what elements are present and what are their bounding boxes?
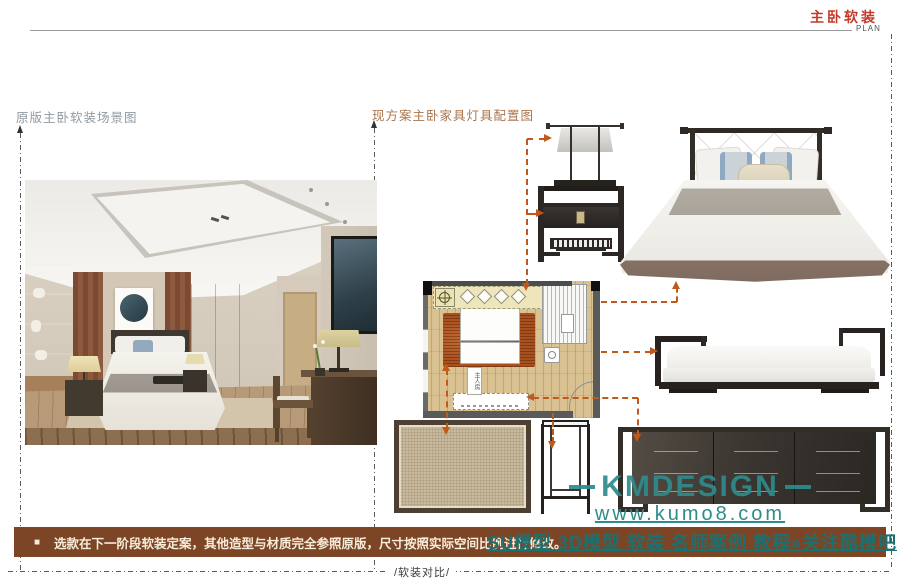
shelf-object	[33, 288, 45, 298]
lamp-symbol-icon	[439, 292, 450, 303]
left-section-label: 原版主卧软装场景图	[16, 107, 138, 126]
note-bullet: ■	[34, 537, 40, 548]
daybed-arm-bar	[839, 328, 885, 333]
plan-window	[423, 369, 428, 393]
guide-arrow-up-icon	[371, 120, 377, 128]
drawer-handle	[734, 451, 778, 452]
orchid-flower	[321, 340, 325, 344]
watermark-url: www.kumo8.com	[578, 503, 802, 526]
daybed-skid	[669, 389, 717, 393]
right-artwork	[331, 236, 377, 334]
drawer-handle	[816, 451, 860, 452]
daybed-skid	[821, 389, 869, 393]
rug-image	[394, 420, 531, 513]
stand-top	[542, 420, 589, 427]
plan-tag	[561, 314, 574, 333]
plan-bed-foot	[460, 342, 520, 364]
stand-foot	[541, 508, 544, 514]
daybed-arm-post	[880, 328, 885, 376]
shelf-object	[35, 350, 47, 360]
guide-line-left	[20, 133, 21, 570]
spotlight	[309, 188, 313, 192]
lamp-shade	[557, 128, 613, 152]
design-board: 主卧软装 PLAN /软装对比/ 原版主卧软装场景图 现方案主卧家具灯具配置图	[0, 0, 900, 586]
spotlight	[325, 202, 329, 206]
nightstand-stretcher	[538, 252, 560, 256]
wall-art-circle	[120, 294, 148, 322]
chair-leg	[275, 428, 279, 442]
chair-seat	[273, 400, 313, 408]
connector-line	[601, 301, 677, 303]
orchid-flower	[313, 344, 317, 348]
lamp-leg	[598, 127, 600, 184]
bed-tray	[153, 376, 187, 384]
arrow-right-icon	[650, 347, 658, 355]
arrow-down-icon	[442, 427, 450, 435]
plan-pillow-symbols	[459, 289, 547, 305]
nightstand-top	[538, 186, 624, 191]
bed-image	[620, 120, 890, 286]
guide-arrow-up-icon	[17, 125, 23, 133]
connector-line	[446, 369, 448, 429]
blue-pillow	[133, 340, 153, 354]
plan-wall-corner	[423, 281, 432, 295]
plan-window	[423, 329, 428, 353]
plan-room-label: 主人房	[467, 367, 482, 395]
drawer-handle	[654, 451, 698, 452]
lamp-leg	[570, 127, 572, 184]
plan-bed	[460, 307, 520, 341]
connector-line	[676, 287, 678, 302]
arrow-down-icon	[522, 283, 530, 291]
plan-appliance	[544, 347, 560, 363]
bedside-lamp-shade	[67, 356, 101, 372]
watermark-dash	[569, 485, 595, 489]
connector-line	[601, 351, 651, 353]
arrow-down-icon	[548, 441, 556, 449]
page-subtitle: PLAN	[856, 24, 881, 33]
console-top-bar	[618, 427, 890, 432]
drawer-handle	[816, 473, 860, 474]
arrow-right-icon	[536, 209, 544, 217]
lamp-top-bar	[548, 125, 622, 127]
shelf-object	[31, 320, 41, 332]
bedside-lamp-shade	[185, 354, 205, 364]
drawer-handle	[816, 491, 860, 492]
connector-line	[526, 139, 528, 285]
daybed-image	[655, 316, 885, 394]
chair-leg	[307, 408, 311, 438]
plan-wall-corner	[591, 281, 600, 291]
right-section-label: 现方案主卧家具灯具配置图	[372, 105, 534, 124]
watermark-brand: KMDESIGN	[560, 470, 820, 504]
arrow-up-icon	[442, 363, 450, 371]
arrow-right-icon	[544, 134, 552, 142]
headboard-cap	[680, 127, 688, 134]
arrow-left-icon	[526, 393, 534, 401]
daybed-arm-post	[655, 336, 661, 386]
nightstand-left	[65, 380, 103, 416]
bedroom-photo	[25, 180, 377, 445]
header-rule	[30, 30, 852, 31]
connector-line	[527, 138, 545, 140]
connector-line	[533, 397, 638, 399]
desk-lamp-shade	[317, 330, 361, 347]
daybed-base	[659, 382, 879, 389]
nightstand-right	[183, 370, 207, 392]
guide-line-right	[891, 34, 892, 570]
desk-lamp-base	[329, 368, 349, 372]
table-lamp-image	[548, 122, 622, 186]
desk-lamp-stem	[337, 347, 340, 370]
arrow-down-icon	[633, 434, 641, 442]
nightstand-stretcher	[556, 248, 606, 251]
connector-line	[637, 398, 639, 436]
plan-wall	[427, 281, 572, 286]
desk-body	[311, 377, 377, 445]
watermark-brand-text: KMDESIGN	[601, 470, 779, 504]
plan-nightstand-left	[435, 288, 455, 307]
plan-bench	[453, 393, 529, 410]
bedside-lamp-stem	[83, 372, 85, 380]
divider-label: /软装对比/	[388, 564, 456, 580]
watermark-dash	[785, 485, 811, 489]
daybed-arm-bar	[655, 336, 707, 342]
headboard-cap	[824, 127, 832, 134]
watermark-overlay-text: SU模型 3D模型 软装 名师案例 教程»关注酷模吧	[487, 529, 897, 555]
arrow-up-icon	[672, 281, 680, 289]
lamp-finial	[546, 123, 550, 129]
drawer-pull	[576, 211, 585, 224]
daybed-seat	[663, 368, 875, 382]
spotlight	[343, 220, 347, 224]
orchid-pot	[315, 368, 325, 376]
connector-line	[552, 413, 554, 443]
nightstand-image	[538, 186, 624, 264]
